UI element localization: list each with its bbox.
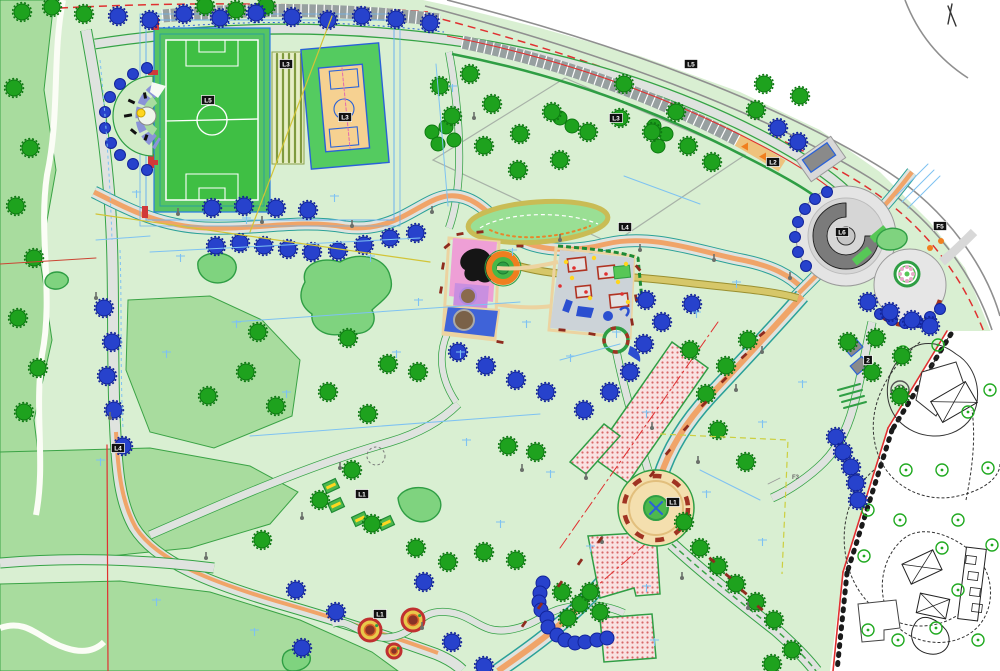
svg-text:L4: L4: [621, 224, 629, 231]
sand-circle: [460, 288, 476, 304]
svg-text:L1: L1: [358, 491, 366, 498]
amphitheater-spot: [137, 109, 145, 117]
svg-text:F3: F3: [792, 475, 800, 481]
area-code-labels: F3: [792, 475, 800, 481]
svg-text:L1: L1: [376, 611, 384, 618]
splash-pool: [454, 310, 474, 330]
svg-text:L5: L5: [204, 97, 212, 104]
svg-text:L5: L5: [687, 61, 695, 68]
fountain-center: [905, 272, 910, 277]
svg-text:L6: L6: [838, 229, 846, 236]
spring-rider-blue: [603, 311, 613, 321]
site-plan: F3L5L3L3L5L3L2L6F5L4L4L1L12L1: [0, 0, 1000, 671]
svg-text:2: 2: [866, 357, 870, 364]
svg-text:L4: L4: [114, 445, 122, 452]
play-tile-green: [613, 265, 630, 279]
svg-text:L2: L2: [769, 159, 777, 166]
svg-text:F5: F5: [936, 223, 944, 230]
svg-text:L3: L3: [282, 61, 290, 68]
climbing-frame-blue: [576, 306, 594, 318]
site-plan-canvas: F3L5L3L3L5L3L2L6F5L4L4L1L12L1: [0, 0, 1000, 671]
svg-text:L1: L1: [669, 499, 677, 506]
basketball-court: [318, 64, 369, 152]
svg-text:L3: L3: [341, 114, 349, 121]
svg-text:L3: L3: [612, 115, 620, 122]
